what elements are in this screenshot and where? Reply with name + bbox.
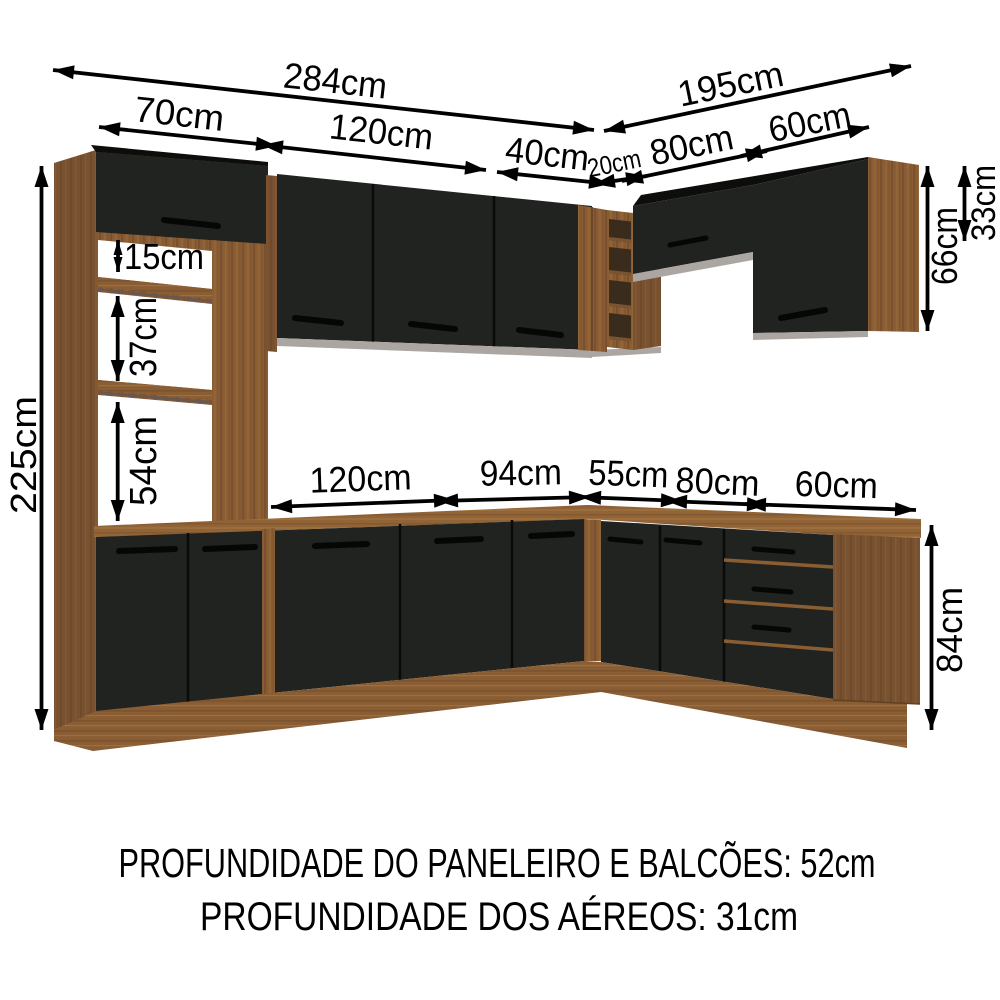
svg-text:60cm: 60cm xyxy=(794,463,878,506)
svg-text:55cm: 55cm xyxy=(588,452,669,496)
svg-text:66cm: 66cm xyxy=(924,207,965,285)
svg-text:15cm: 15cm xyxy=(124,236,204,277)
svg-text:80cm: 80cm xyxy=(675,459,761,504)
svg-text:84cm: 84cm xyxy=(929,587,970,673)
svg-text:PROFUNDIDADE DO PANELEIRO E BA: PROFUNDIDADE DO PANELEIRO E BALCÕES: 52c… xyxy=(119,840,876,886)
svg-text:33cm: 33cm xyxy=(965,165,1000,241)
svg-text:94cm: 94cm xyxy=(479,451,562,493)
svg-text:225cm: 225cm xyxy=(3,396,44,514)
svg-text:54cm: 54cm xyxy=(123,416,165,506)
svg-text:37cm: 37cm xyxy=(123,297,165,377)
svg-text:120cm: 120cm xyxy=(309,456,412,501)
svg-text:PROFUNDIDADE DOS AÉREOS: 31cm: PROFUNDIDADE DOS AÉREOS: 31cm xyxy=(200,894,798,939)
